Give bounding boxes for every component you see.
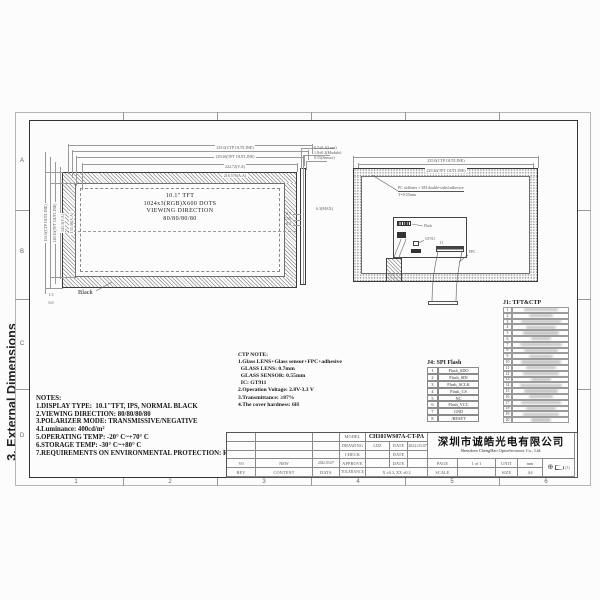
drawing-label: DRAWING	[340, 442, 366, 451]
title-block: MODEL CH101WS07A-CT-PA 深圳市诚皓光电有限公司 Shenz…	[226, 432, 578, 478]
revision-date: 2022.03.07	[313, 459, 340, 468]
page-value: 1 of 1	[458, 459, 496, 468]
dim-label: 235.0(CTP OUTLINE)	[360, 154, 532, 164]
unit-value: mm	[518, 459, 543, 468]
j4-pin: 5	[427, 395, 438, 402]
company: 深圳市诚皓光电有限公司 Shenzhen ChengHao Optoelectr…	[428, 433, 575, 459]
j1-connector	[436, 246, 464, 252]
zone-letter: D	[18, 433, 26, 439]
drawing-sheet: 3. External Dimensions ABCD 123456	[0, 0, 600, 600]
j4-pin: 6	[427, 401, 438, 408]
j4-table: J4: SPI Flash 1 Flash_SDO 2 Flash_SDI 3 …	[427, 360, 479, 422]
j1-pin: 20	[503, 417, 512, 423]
zone-number: 6	[541, 479, 551, 485]
drawing-date-label: DATE	[390, 442, 408, 451]
note-line: 2.VIEWING DIRECTION: 80/80/80/80	[36, 411, 236, 419]
fpc-end-bar	[428, 301, 458, 305]
front-view-label: 10.1" TFT1024x3(RGB)X600 DOTSVIEWING DIR…	[92, 193, 268, 224]
dim-label: 135.36(A.A)	[66, 153, 75, 293]
projection-symbol: ⊕ (3)	[543, 459, 575, 477]
back-adhesive-bottom	[354, 274, 537, 281]
j4-pin: 8	[427, 415, 438, 422]
front-view-label-line: 1024x3(RGB)X600 DOTS	[92, 201, 268, 209]
j1-label: J1	[440, 241, 443, 246]
content-header: CONTENT	[256, 468, 313, 477]
ctp-note-line: 1.Glass LENS+Glass sensor+FPC+adhesive	[238, 359, 398, 366]
j4-row: 7 GND	[427, 408, 479, 415]
company-name-cn: 深圳市诚皓光电有限公司	[438, 437, 565, 448]
j1-rows: 1 2 3 4 5	[503, 307, 569, 423]
j4-pin: 3	[427, 381, 438, 388]
j4-signal: GND	[438, 408, 479, 415]
j4-row: 8 /RESET	[427, 415, 479, 422]
projection-trapezoid-icon	[555, 465, 564, 470]
tolerance-value: X ±0.3, XX ±0.2	[366, 468, 428, 477]
drawing-by: LDZ	[366, 442, 390, 451]
dim-label: 229.46(TFT OUTLINE)	[130, 151, 340, 160]
back-adhesive-left	[354, 176, 361, 274]
front-view-label-line: 10.1" TFT	[92, 193, 268, 201]
notes-block: NOTES: 1.DISPLAY TYPE: 10.1"TFT, IPS, NO…	[36, 395, 236, 457]
ctp-note-line: 3.Transmittance: ≥87%	[238, 395, 398, 402]
approve-label: APPROVE	[340, 459, 366, 468]
dim-label: 216.576(A.A)	[130, 170, 340, 179]
component-chip	[397, 232, 406, 238]
ctp-note-title: CTP NOTE:	[238, 352, 398, 359]
j4-row: 1 Flash_SDO	[427, 367, 479, 374]
ctp-note-line: GLASS SENSOR: 0.55mm	[238, 373, 398, 380]
j4-pin: 7	[427, 408, 438, 415]
j4-row: 3 Flash_SCLK	[427, 381, 479, 388]
j4-signal: Flash_SDI	[438, 374, 479, 381]
j4-signal: NC	[438, 395, 479, 402]
note-line: 1.DISPLAY TYPE: 10.1"TFT, IPS, NORMAL BL…	[36, 403, 236, 411]
front-dims-left: 155.0(CTP OUTLINE)149.10(TFT OUTLINE)141…	[40, 153, 64, 293]
size-value: A4	[518, 468, 543, 477]
revision-rev: V0	[227, 459, 256, 468]
dim-label: 6.0	[42, 297, 60, 305]
unit-label: UNIT	[496, 459, 518, 468]
note-line: 6.STORAGE TEMP: -30° C~+80° C	[36, 442, 236, 450]
component-small	[411, 249, 421, 253]
ctp-ic	[413, 241, 419, 246]
note-line: 3.POLARIZER MODE: TRANSMISSIVE/NEGATIVE	[36, 418, 236, 426]
dim-label: 0.55(Sensor)	[314, 155, 341, 160]
zone-letter: B	[18, 249, 26, 255]
j4-row: 2 Flash_SDI	[427, 374, 479, 381]
model-label: MODEL	[340, 433, 366, 442]
dim-label: 149.10(TFT OUTLINE)	[49, 153, 58, 293]
scale-label: SCALE	[428, 468, 458, 477]
rev-header: REV	[227, 468, 256, 477]
j4-pin: 2	[427, 374, 438, 381]
dim-label: 1.5	[42, 289, 60, 297]
check-date-label: DATE	[390, 451, 408, 460]
zone-number: 5	[447, 479, 457, 485]
j1-row: 20	[503, 417, 569, 423]
notes-lines: 1.DISPLAY TYPE: 10.1"TFT, IPS, NORMAL BL…	[36, 403, 236, 458]
back-note: PC stiffener + 3M double-sided adhesive …	[398, 185, 464, 197]
black-bezel-label: Black	[78, 289, 93, 296]
fpc-stiffener	[386, 258, 402, 282]
j4-signal: /RESET	[438, 415, 479, 422]
model-value: CH101WS07A-CT-PA	[366, 433, 428, 442]
notes-title: NOTES:	[36, 395, 236, 403]
revision-content: NEW	[256, 459, 313, 468]
drawing-date: 2022.03.07	[408, 442, 428, 451]
size-label: SIZE	[496, 468, 518, 477]
zone-letter: A	[18, 158, 26, 164]
zone-number: 1	[71, 479, 81, 485]
j4-signal: Flash_VCC	[438, 401, 479, 408]
back-dims-top: 235.0(CTP OUTLINE)229.46(TFT OUTLINE)	[360, 154, 532, 174]
dim-label: 141.3(V.A)	[57, 153, 66, 293]
approve-date-label: DATE	[390, 459, 408, 468]
front-view-label-line: 80/80/80/80	[92, 216, 268, 224]
ctp-note-lines: 1.Glass LENS+Glass sensor+FPC+adhesive G…	[238, 359, 398, 409]
front-dims-corner: 1.56.0	[42, 289, 60, 306]
fpc-label: FPC	[469, 250, 475, 255]
note-line: 5.OPERATING TEMP: -20° C~+70° C	[36, 434, 236, 442]
ctp-note-line: GLASS LENS: 0.7mm	[238, 366, 398, 373]
dim-label: 235.0(CTP OUTLINE)	[130, 142, 340, 151]
ctp-note-line: 4.The cover hardness: 6H	[238, 402, 398, 409]
page-label: PAGE	[428, 459, 458, 468]
ctp-note-line: 2.Operation Voltage: 2.8V-3.3 V	[238, 387, 398, 394]
ctp-note-block: CTP NOTE: 1.Glass LENS+Glass sensor+FPC+…	[238, 352, 398, 409]
side-dim-mid: 6.3(MAX)	[316, 206, 333, 211]
back-note-line2: T=0.55mm	[398, 192, 464, 197]
flash-connector	[397, 221, 411, 226]
company-name-en: Shenzhen ChengHao Optoelectronic Co., Lt…	[461, 448, 542, 454]
note-line: 4.Luminance: 400cd/m²	[36, 426, 236, 434]
front-view-label-line: VIEWING DIRECTION	[92, 208, 268, 216]
first-angle-icon: ⊕	[547, 464, 553, 471]
j4-row: 5 NC	[427, 395, 479, 402]
front-bezel-bottom	[63, 277, 296, 287]
j1-signal-obscured	[512, 417, 569, 423]
zone-number: 3	[259, 479, 269, 485]
dim-label: 222.72(V.A)	[130, 161, 340, 170]
j4-row: 4 Flash_CS	[427, 388, 479, 395]
projection-note: (3)	[565, 466, 569, 470]
j4-row: 6 Flash_VCC	[427, 401, 479, 408]
ctp-ic-label: GT911	[425, 237, 435, 242]
j4-rows: 1 Flash_SDO 2 Flash_SDI 3 Flash_SCLK 4 F…	[427, 367, 479, 422]
data-header: DATA	[313, 468, 340, 477]
j4-pin: 1	[427, 367, 438, 374]
front-centerline	[63, 231, 296, 232]
tolerance-label: TOLERANCE	[340, 468, 366, 477]
zone-number: 2	[165, 479, 175, 485]
j4-signal: Flash_CS	[438, 388, 479, 395]
j4-title: J4: SPI Flash	[427, 360, 479, 366]
ctp-note-line: IC: GT911	[238, 380, 398, 387]
j4-pin: 4	[427, 388, 438, 395]
dim-label: 155.0(CTP OUTLINE)	[40, 153, 49, 293]
side-dims-left: 0.70.550.2	[272, 211, 291, 226]
zone-number: 4	[353, 479, 363, 485]
note-line: 7.REQUIREMENTS ON ENVIRONMENTAL PROTECTI…	[36, 450, 236, 458]
j4-signal: Flash_SDO	[438, 367, 479, 374]
scale-value	[458, 468, 496, 477]
dim-label: 0.2	[272, 221, 291, 226]
j1-table: J1: TFT&CTP 1 2 3 4	[503, 300, 569, 423]
zone-letter: C	[18, 341, 26, 347]
side-dims-top: 0.7±0.1(Lens)1.8±0.2(Module)0.55(Sensor)	[314, 145, 341, 160]
j4-signal: Flash_SCLK	[438, 381, 479, 388]
j1-title: J1: TFT&CTP	[503, 300, 569, 306]
back-adhesive-right	[530, 176, 537, 274]
check-label: CHECK	[340, 451, 366, 460]
flash-label: Flash	[424, 224, 432, 229]
dim-label: 229.46(TFT OUTLINE)	[360, 164, 532, 174]
